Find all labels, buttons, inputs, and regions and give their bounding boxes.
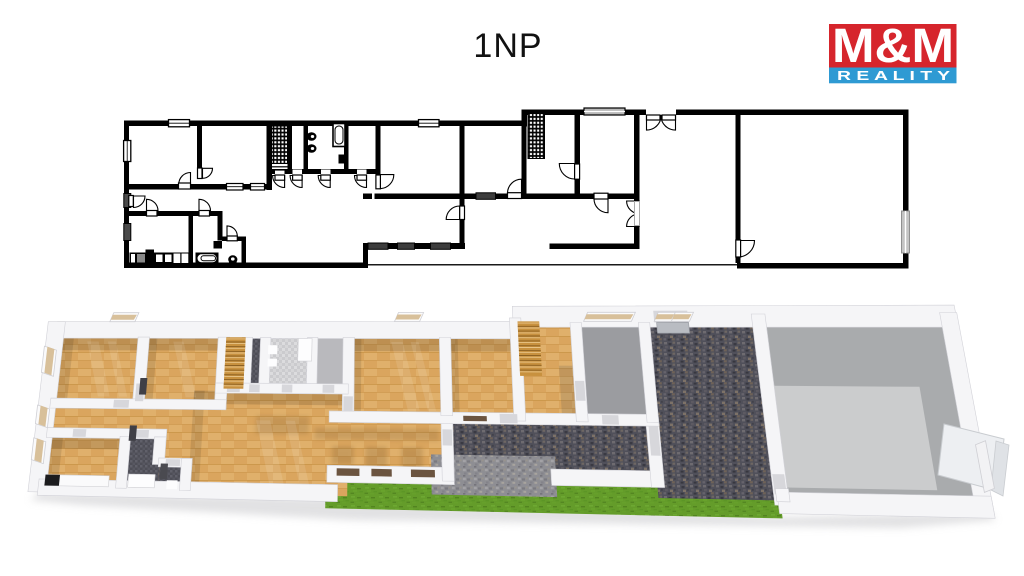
svg-text:R E A L I T Y: R E A L I T Y xyxy=(837,69,951,83)
svg-text:1NP: 1NP xyxy=(473,27,542,65)
svg-text:M&M: M&M xyxy=(832,20,954,73)
